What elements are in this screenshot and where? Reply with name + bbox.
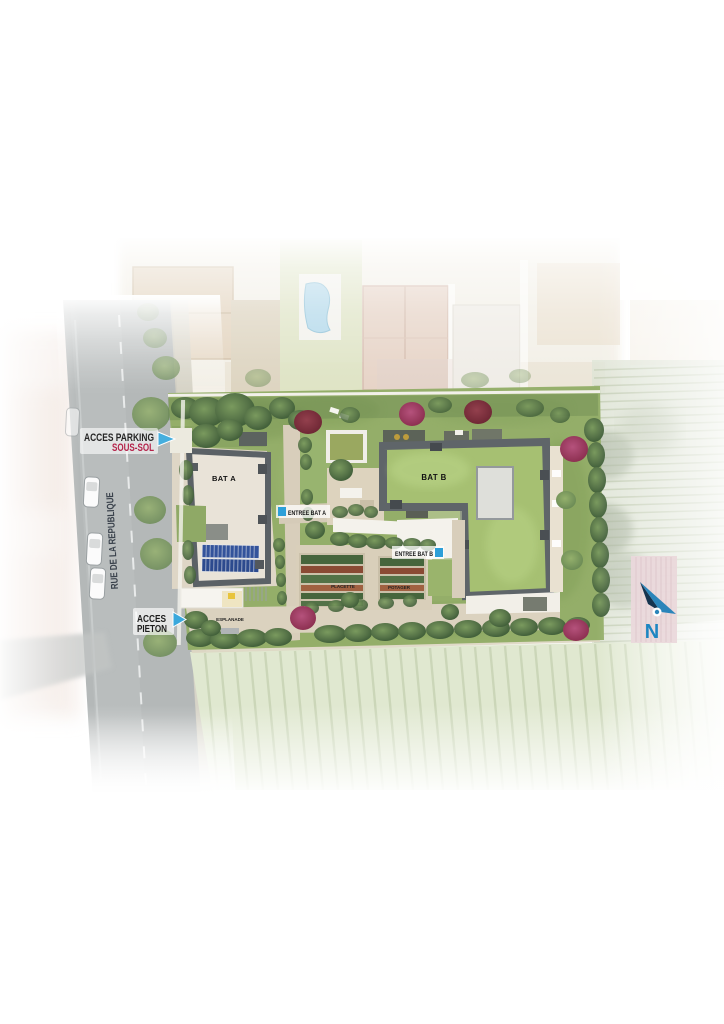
svg-text:POTAGER: POTAGER — [388, 585, 411, 590]
svg-text:SOUS-SOL: SOUS-SOL — [112, 442, 154, 454]
svg-text:ENTREE BAT A: ENTREE BAT A — [288, 510, 326, 517]
svg-text:PIETON: PIETON — [137, 624, 167, 635]
svg-text:ESPLANADE: ESPLANADE — [216, 617, 244, 622]
svg-text:ENTREE BAT B: ENTREE BAT B — [395, 551, 433, 558]
svg-text:BAT A: BAT A — [212, 474, 236, 483]
svg-text:N: N — [645, 621, 659, 643]
svg-text:BAT B: BAT B — [421, 473, 446, 482]
svg-text:PLACETTE: PLACETTE — [331, 584, 355, 589]
